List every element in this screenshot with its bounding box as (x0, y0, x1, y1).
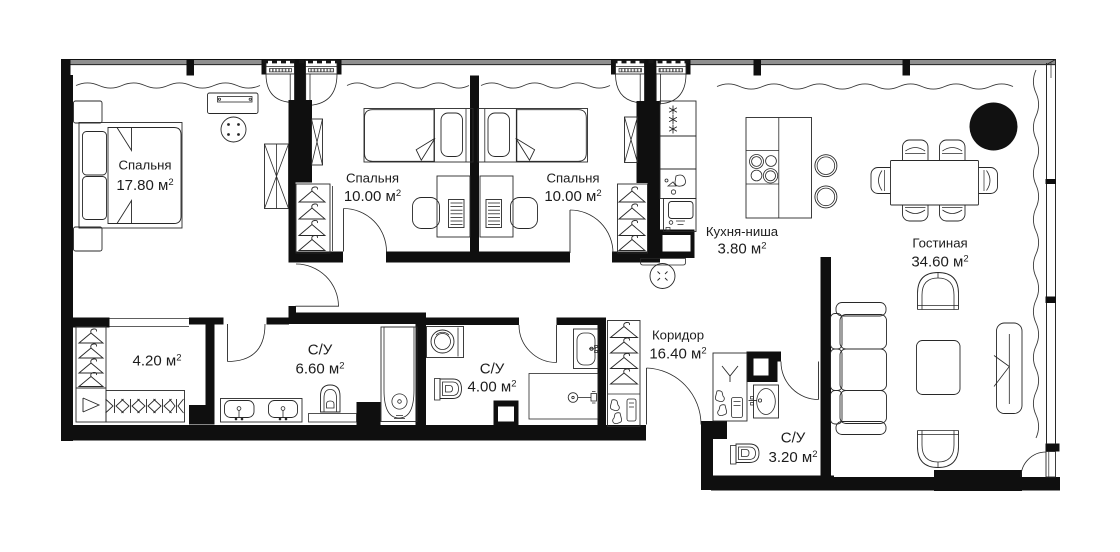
svg-text:34.60 м2: 34.60 м2 (911, 254, 968, 271)
svg-text:3.80 м2: 3.80 м2 (718, 241, 767, 258)
svg-text:Спальня: Спальня (119, 158, 172, 173)
svg-text:С/У: С/У (781, 430, 806, 447)
svg-text:С/У: С/У (480, 361, 505, 378)
svg-text:Спальня: Спальня (346, 171, 399, 186)
svg-text:6.60 м2: 6.60 м2 (296, 361, 345, 378)
svg-text:10.00 м2: 10.00 м2 (344, 188, 401, 205)
svg-text:3.20 м2: 3.20 м2 (769, 449, 818, 466)
svg-text:С/У: С/У (308, 342, 333, 359)
svg-text:16.40 м2: 16.40 м2 (649, 346, 706, 363)
svg-text:10.00 м2: 10.00 м2 (544, 188, 601, 205)
svg-text:17.80 м2: 17.80 м2 (116, 177, 173, 194)
svg-text:4.00 м2: 4.00 м2 (468, 379, 517, 396)
svg-text:Коридор: Коридор (652, 328, 704, 343)
svg-text:Гостиная: Гостиная (912, 236, 967, 251)
svg-text:Спальня: Спальня (547, 171, 600, 186)
svg-text:4.20 м2: 4.20 м2 (133, 353, 182, 370)
svg-text:Кухня-ниша: Кухня-ниша (706, 224, 779, 239)
